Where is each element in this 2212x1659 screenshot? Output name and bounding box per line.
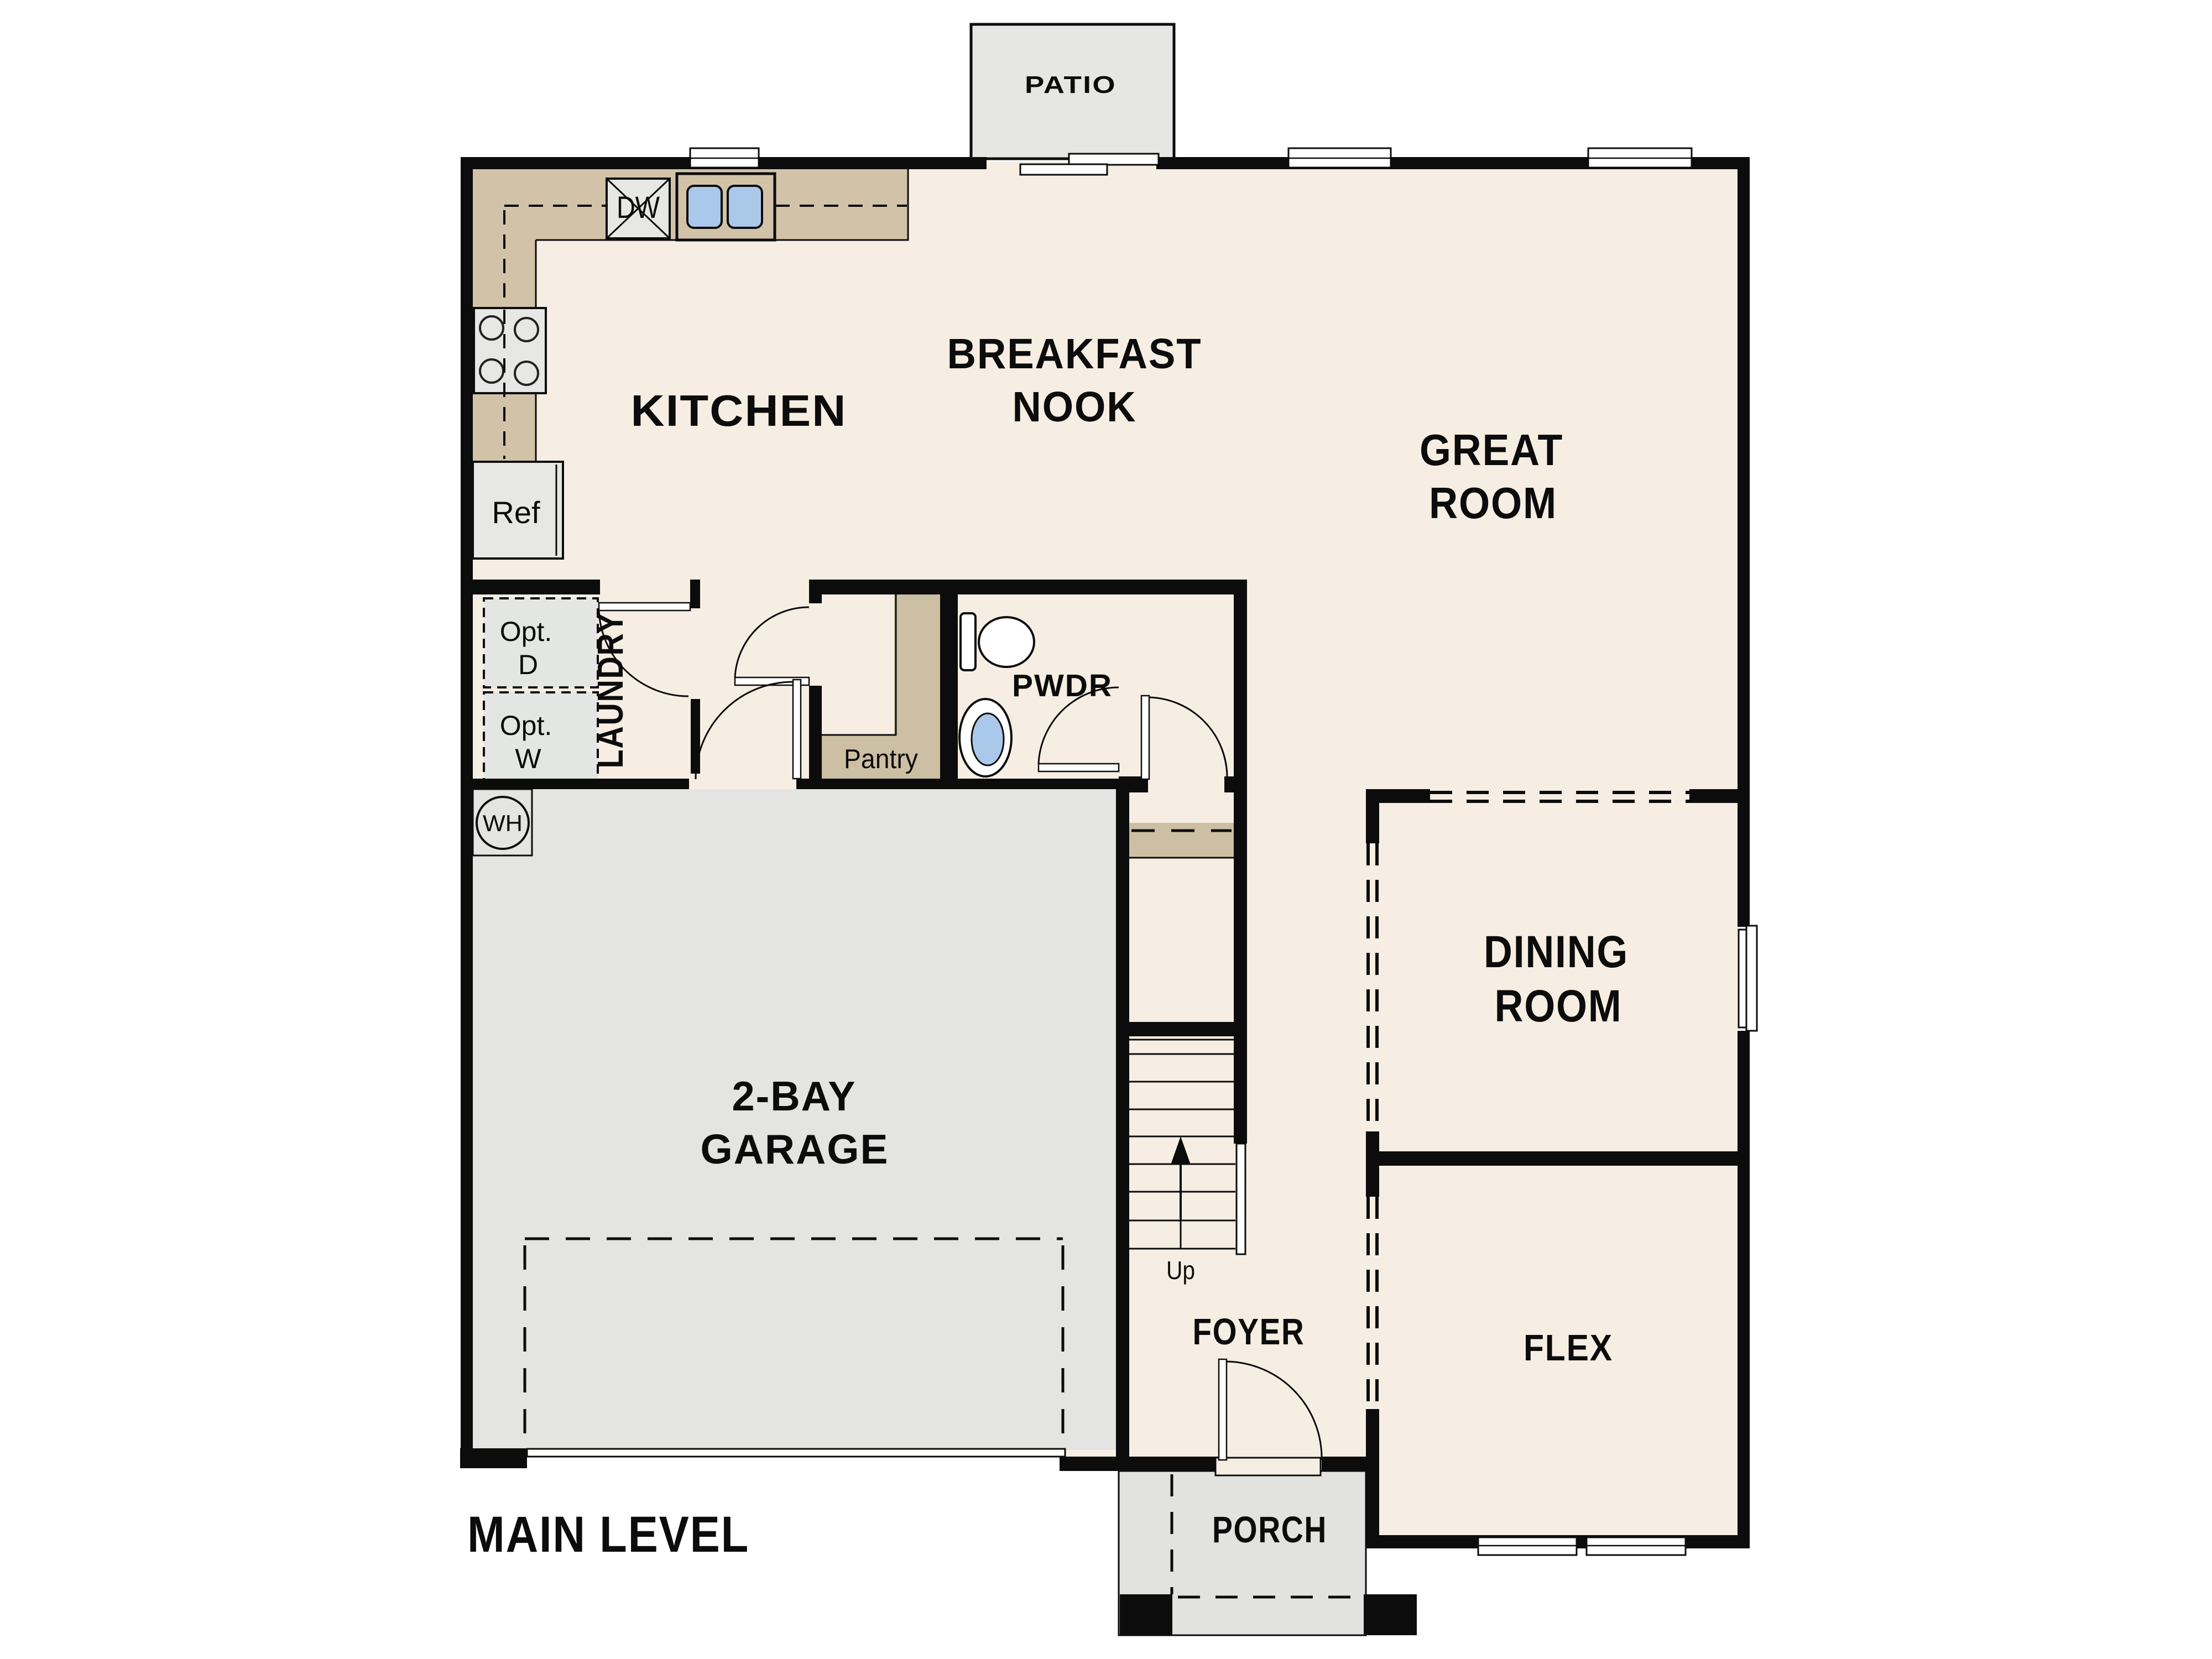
svg-text:Opt.: Opt. [500, 616, 552, 647]
svg-text:KITCHEN: KITCHEN [631, 386, 847, 435]
svg-text:ROOM: ROOM [1495, 981, 1623, 1031]
svg-text:PORCH: PORCH [1212, 1509, 1327, 1551]
svg-text:2-BAY: 2-BAY [732, 1073, 857, 1119]
svg-text:GREAT: GREAT [1420, 425, 1563, 474]
svg-text:DW: DW [617, 190, 660, 225]
svg-text:GARAGE: GARAGE [701, 1126, 889, 1172]
svg-text:FLEX: FLEX [1524, 1327, 1613, 1369]
svg-text:FOYER: FOYER [1193, 1311, 1305, 1353]
svg-text:WH: WH [483, 810, 523, 836]
svg-text:ROOM: ROOM [1429, 478, 1557, 528]
svg-text:D: D [518, 649, 538, 680]
svg-text:Pantry: Pantry [844, 744, 918, 774]
svg-text:Ref: Ref [492, 495, 540, 530]
svg-text:BREAKFAST: BREAKFAST [947, 330, 1202, 378]
svg-text:Opt.: Opt. [500, 710, 552, 741]
svg-text:NOOK: NOOK [1013, 383, 1137, 431]
svg-text:PWDR: PWDR [1012, 668, 1113, 703]
svg-text:MAIN LEVEL: MAIN LEVEL [467, 1506, 749, 1563]
svg-text:PATIO: PATIO [1025, 71, 1117, 98]
svg-text:W: W [515, 743, 541, 774]
svg-text:DINING: DINING [1484, 927, 1629, 977]
svg-text:Up: Up [1166, 1256, 1195, 1285]
